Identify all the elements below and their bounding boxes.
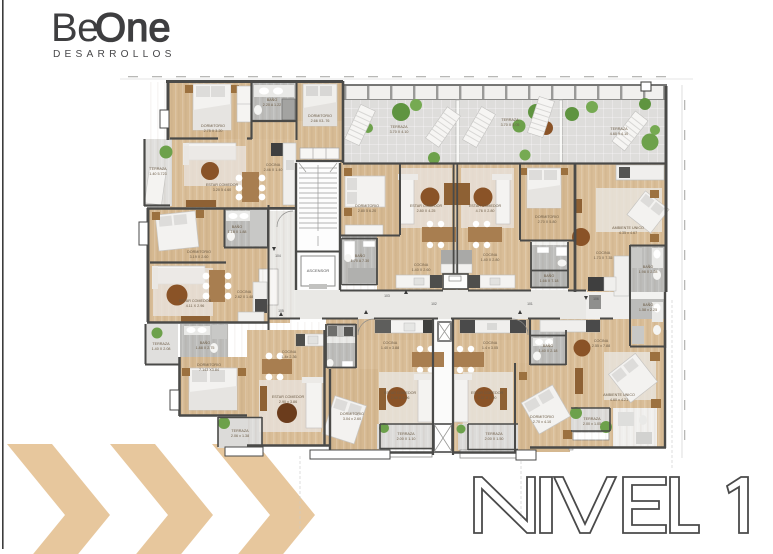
svg-text:COCINA: COCINA	[282, 350, 297, 354]
svg-text:1.40 X 2.18: 1.40 X 2.18	[539, 349, 558, 353]
svg-text:DORMITORIO: DORMITORIO	[340, 412, 364, 416]
svg-text:BAÑO: BAÑO	[544, 273, 555, 278]
svg-text:3.70 X 4.10: 3.70 X 4.10	[390, 130, 409, 134]
svg-text:AMBIENTE UNICO: AMBIENTE UNICO	[603, 393, 635, 397]
svg-text:4.76 X 2.80: 4.76 X 2.80	[476, 209, 495, 213]
svg-text:ESTAR COMEDOR: ESTAR COMEDOR	[179, 299, 212, 303]
svg-text:1.40 X 2.08: 1.40 X 2.08	[152, 347, 171, 351]
svg-text:2.90 x 3.86: 2.90 x 3.86	[279, 400, 297, 404]
svg-text:2.80 X 4.25: 2.80 X 4.25	[417, 209, 436, 213]
svg-text:2.46 X 1.40: 2.46 X 1.40	[264, 168, 283, 172]
svg-text:1.58 x 2.25: 1.58 x 2.25	[639, 308, 657, 312]
svg-text:106: 106	[593, 297, 599, 301]
svg-text:BAÑO: BAÑO	[200, 340, 211, 345]
svg-text:BAÑO: BAÑO	[543, 343, 554, 348]
svg-text:4.35 x 4.67: 4.35 x 4.67	[619, 231, 637, 235]
svg-text:2.06 x 1.38: 2.06 x 1.38	[231, 434, 249, 438]
svg-text:COCINA: COCINA	[266, 163, 281, 167]
svg-text:2.70 x 4.10: 2.70 x 4.10	[533, 420, 551, 424]
svg-text:BAÑO: BAÑO	[355, 253, 366, 258]
svg-text:3.04 x 2.60: 3.04 x 2.60	[343, 417, 361, 421]
svg-text:DORMITORIO: DORMITORIO	[535, 215, 559, 219]
svg-text:3.37 X 3.90: 3.37 X 3.90	[478, 396, 497, 400]
svg-text:1.88 X 2.75: 1.88 X 2.75	[196, 346, 215, 350]
svg-text:BAÑO: BAÑO	[643, 264, 654, 269]
svg-text:Be: Be	[51, 6, 99, 50]
svg-text:2.00 X 1.10: 2.00 X 1.10	[397, 437, 416, 441]
svg-text:2.80 5 6.20: 2.80 5 6.20	[358, 209, 376, 213]
svg-text:COCINA: COCINA	[594, 339, 609, 343]
svg-text:3.70 X 5.05: 3.70 X 5.05	[501, 123, 520, 127]
svg-text:ESTAR COMEDOR: ESTAR COMEDOR	[206, 183, 239, 187]
svg-text:2.66 X3..76: 2.66 X3..76	[311, 119, 330, 123]
svg-text:1.73 X 7.35: 1.73 X 7.35	[594, 256, 613, 260]
svg-text:ASCENSOR: ASCENSOR	[307, 268, 330, 273]
svg-text:TERRAZA: TERRAZA	[610, 127, 628, 131]
svg-text:ESTAR COMEDOR: ESTAR COMEDOR	[384, 391, 417, 395]
svg-text:TERRAZA: TERRAZA	[485, 432, 503, 436]
svg-text:1.40 X 2.60: 1.40 X 2.60	[412, 268, 431, 272]
svg-text:2.20 A 1.22: 2.20 A 1.22	[263, 103, 281, 107]
svg-text:2.55 x 7.88: 2.55 x 7.88	[592, 344, 610, 348]
svg-text:DORMITORIO: DORMITORIO	[197, 363, 221, 367]
svg-text:DORMITORIO: DORMITORIO	[187, 250, 211, 254]
svg-text:103: 103	[384, 294, 390, 298]
svg-text:TERRAZA: TERRAZA	[397, 432, 415, 436]
svg-text:TERRAZA: TERRAZA	[501, 118, 519, 122]
svg-text:COCINA: COCINA	[483, 253, 498, 257]
svg-text:One: One	[95, 6, 171, 50]
svg-text:DORMITORIO: DORMITORIO	[530, 415, 554, 419]
svg-text:ESTAR COMEDOR: ESTAR COMEDOR	[469, 204, 502, 208]
svg-text:TERRAZA: TERRAZA	[231, 429, 249, 433]
svg-text:3.19 X 2.60: 3.19 X 2.60	[190, 255, 209, 259]
svg-text:DORMITORIO: DORMITORIO	[355, 204, 379, 208]
svg-text:105: 105	[278, 309, 284, 313]
svg-text:COCINA: COCINA	[237, 290, 252, 294]
svg-text:DESARROLLOS: DESARROLLOS	[53, 49, 176, 60]
svg-text:BAÑO: BAÑO	[267, 97, 278, 102]
svg-text:2.70 X 5.80: 2.70 X 5.80	[538, 220, 557, 224]
svg-text:1.66 X 7.18: 1.66 X 7.18	[540, 279, 559, 283]
svg-text:COCINA: COCINA	[483, 341, 498, 345]
svg-text:TERRAZA: TERRAZA	[152, 342, 170, 346]
svg-text:101: 101	[527, 302, 533, 306]
svg-text:1.4x 2.36: 1.4x 2.36	[281, 355, 296, 359]
svg-text:ESTAR COMEDOR: ESTAR COMEDOR	[471, 391, 504, 395]
svg-text:COCINA: COCINA	[596, 251, 611, 255]
svg-text:1.40 5.723: 1.40 5.723	[149, 172, 166, 176]
svg-text:1.98 X 2.28: 1.98 X 2.28	[639, 270, 658, 274]
svg-text:COCINA: COCINA	[414, 263, 429, 267]
svg-text:1.40 X 2.80: 1.40 X 2.80	[481, 258, 500, 262]
svg-text:2.00 X 1.50: 2.00 X 1.50	[485, 437, 504, 441]
svg-text:1.40 x 3.88: 1.40 x 3.88	[381, 346, 399, 350]
svg-text:4.60 x 4.21: 4.60 x 4.21	[610, 398, 628, 402]
svg-text:2.90 X 3.96: 2.90 X 3.96	[391, 396, 410, 400]
svg-text:7.143 X3.84: 7.143 X3.84	[199, 368, 219, 372]
svg-text:1.18 X 1.88: 1.18 X 1.88	[228, 230, 247, 234]
svg-text:TERRAZA: TERRAZA	[390, 125, 408, 129]
svg-text:AMBIENTE UNICO: AMBIENTE UNICO	[612, 226, 644, 230]
svg-text:DORMITORIO: DORMITORIO	[201, 124, 225, 128]
svg-text:2.00 x 1.05: 2.00 x 1.05	[583, 422, 601, 426]
svg-text:DORMITORIO: DORMITORIO	[308, 114, 332, 118]
svg-text:2.62 0 1.48: 2.62 0 1.48	[235, 295, 253, 299]
svg-text:1.4 x 3.05: 1.4 x 3.05	[482, 346, 498, 350]
svg-text:2.75 X 3.20: 2.75 X 3.20	[204, 129, 223, 133]
svg-text:ESTAR COMEDOR: ESTAR COMEDOR	[272, 395, 305, 399]
svg-text:4.60 9.4.10: 4.60 9.4.10	[610, 132, 628, 136]
svg-text:102: 102	[431, 302, 437, 306]
svg-text:3.20 5 4.60: 3.20 5 4.60	[213, 188, 231, 192]
svg-text:ESTAR COMEDOR: ESTAR COMEDOR	[410, 204, 443, 208]
svg-text:1.70 A 7.30: 1.70 A 7.30	[351, 259, 369, 263]
svg-text:COCINA: COCINA	[383, 341, 398, 345]
svg-text:104: 104	[275, 254, 281, 258]
svg-text:BAÑO: BAÑO	[643, 302, 654, 307]
svg-text:4.11 X 2.96: 4.11 X 2.96	[186, 304, 205, 308]
svg-text:TERRAZA: TERRAZA	[583, 417, 601, 421]
svg-text:BAÑO: BAÑO	[232, 224, 243, 229]
svg-text:TERRAZA: TERRAZA	[149, 167, 167, 171]
